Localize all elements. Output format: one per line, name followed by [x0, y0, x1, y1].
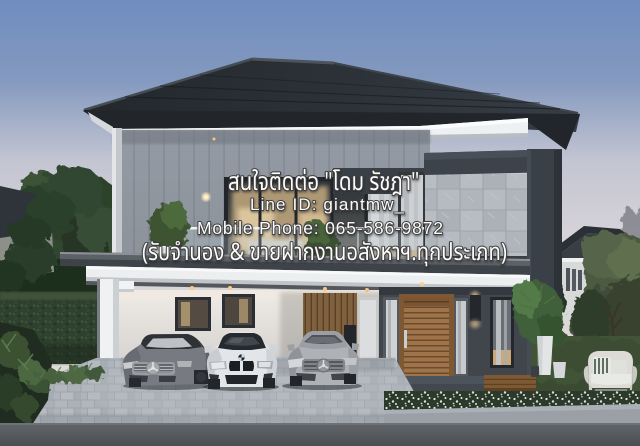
svg-text:Line ID: giantmw_: Line ID: giantmw_	[250, 195, 405, 214]
svg-text:Mobile Phone: 065-586-9872: Mobile Phone: 065-586-9872	[197, 218, 443, 238]
